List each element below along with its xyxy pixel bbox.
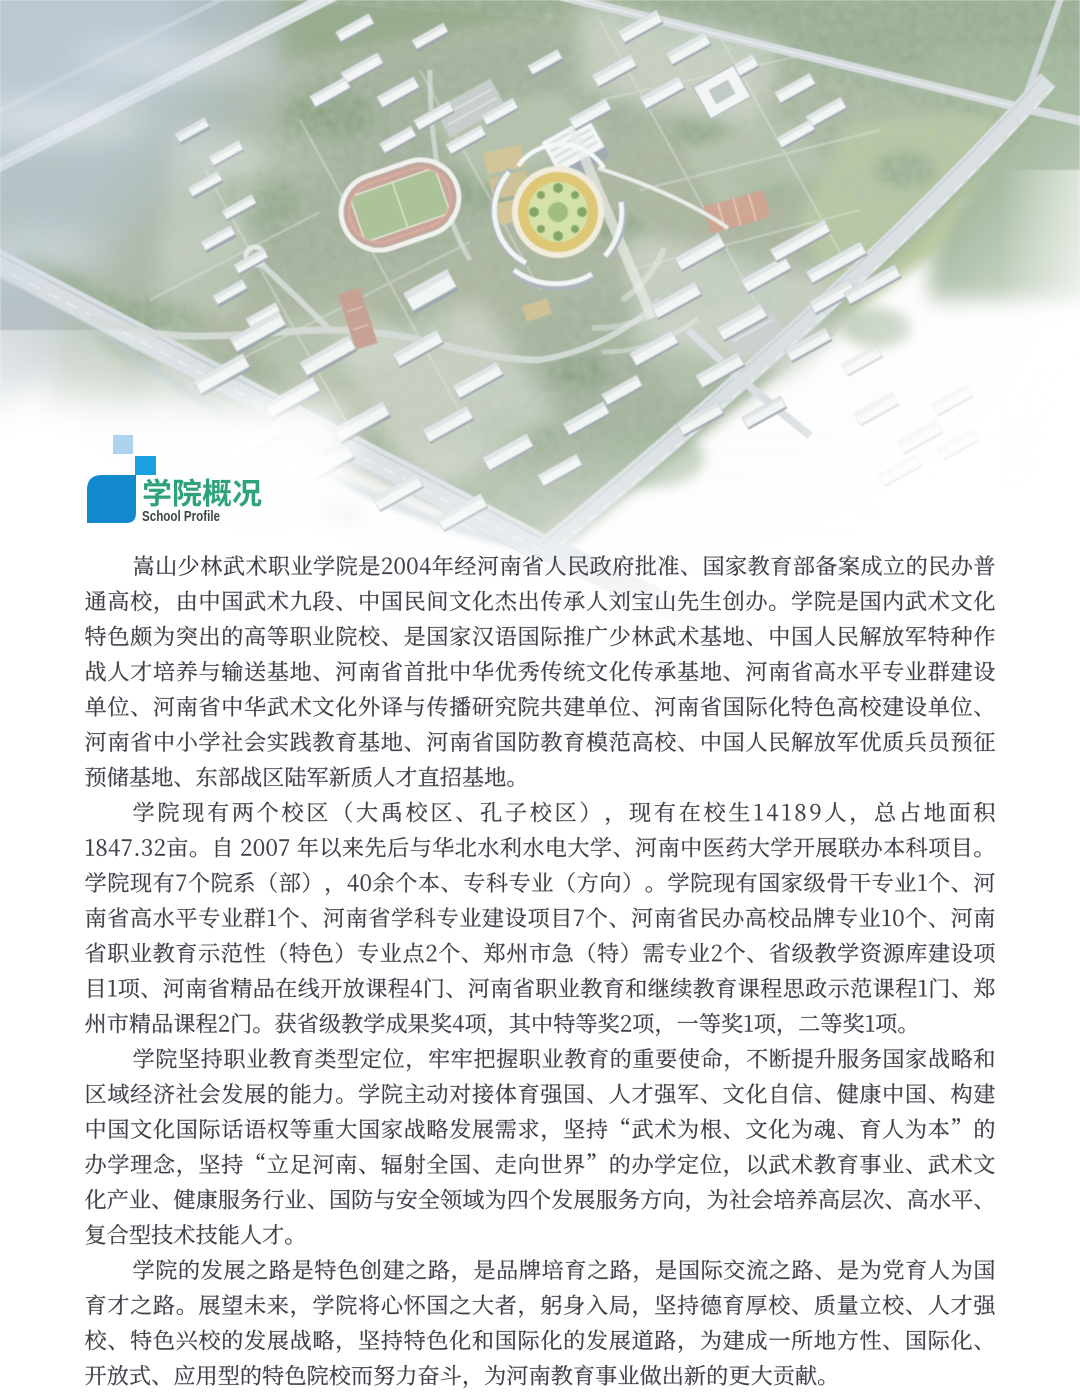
svg-text:School Profile: School Profile bbox=[142, 509, 220, 525]
